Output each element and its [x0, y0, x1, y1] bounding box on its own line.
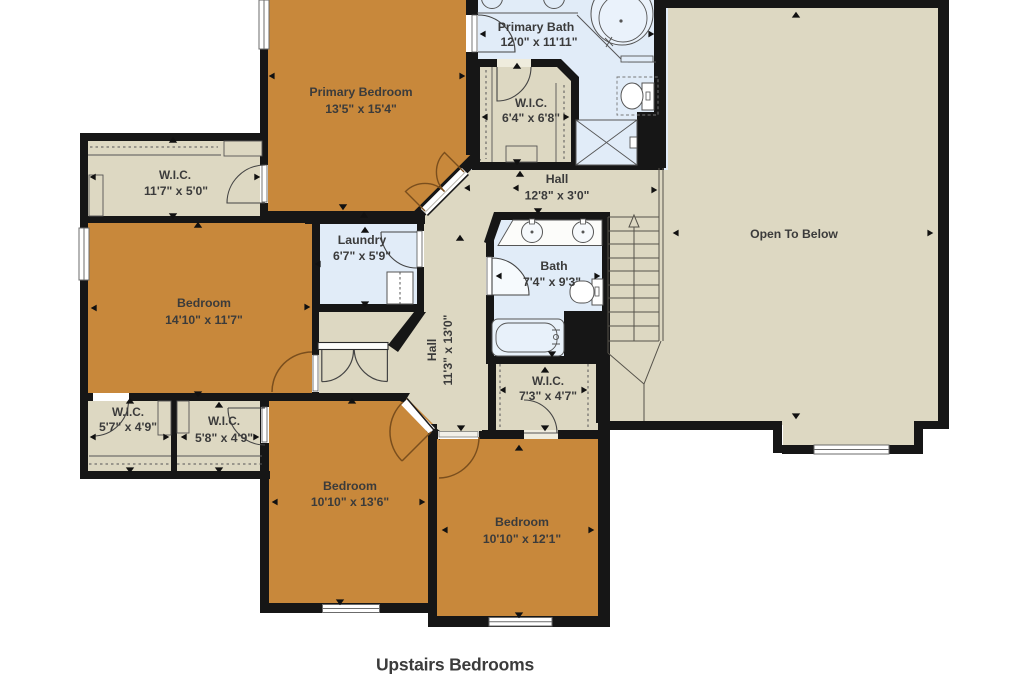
svg-text:Bath: Bath [540, 259, 567, 273]
svg-text:5'8" x 4'9": 5'8" x 4'9" [195, 431, 253, 445]
svg-text:7'3" x 4'7": 7'3" x 4'7" [519, 389, 577, 403]
svg-text:12'8" x 3'0": 12'8" x 3'0" [525, 189, 590, 203]
svg-text:Laundry: Laundry [338, 233, 387, 247]
svg-text:6'4" x 6'8": 6'4" x 6'8" [502, 111, 560, 125]
svg-text:Open To Below: Open To Below [750, 227, 838, 241]
svg-text:10'10" x 13'6": 10'10" x 13'6" [311, 495, 389, 509]
svg-text:W.I.C.: W.I.C. [208, 414, 240, 428]
svg-text:Hall: Hall [425, 339, 439, 362]
svg-text:14'10" x 11'7": 14'10" x 11'7" [165, 313, 243, 327]
svg-text:Bedroom: Bedroom [495, 515, 549, 529]
svg-text:Bedroom: Bedroom [323, 479, 377, 493]
svg-text:W.I.C.: W.I.C. [532, 374, 564, 388]
svg-text:5'7" x 4'9": 5'7" x 4'9" [99, 420, 157, 434]
svg-text:11'7" x 5'0": 11'7" x 5'0" [144, 184, 208, 198]
svg-text:11'3" x 13'0": 11'3" x 13'0" [441, 315, 455, 386]
svg-text:7'4" x 9'3": 7'4" x 9'3" [523, 275, 581, 289]
svg-text:12'0" x 11'11": 12'0" x 11'11" [500, 35, 577, 49]
svg-text:6'7" x 5'9": 6'7" x 5'9" [333, 249, 391, 263]
svg-text:W.I.C.: W.I.C. [159, 168, 191, 182]
svg-text:13'5" x 15'4": 13'5" x 15'4" [325, 102, 397, 116]
svg-text:Hall: Hall [546, 172, 569, 186]
svg-text:W.I.C.: W.I.C. [515, 96, 547, 110]
svg-text:Bedroom: Bedroom [177, 296, 231, 310]
svg-text:10'10" x 12'1": 10'10" x 12'1" [483, 532, 561, 546]
svg-text:Primary Bath: Primary Bath [498, 20, 575, 34]
svg-text:W.I.C.: W.I.C. [112, 405, 144, 419]
svg-text:Primary Bedroom: Primary Bedroom [309, 85, 412, 99]
svg-text:Upstairs Bedrooms: Upstairs Bedrooms [376, 655, 534, 675]
